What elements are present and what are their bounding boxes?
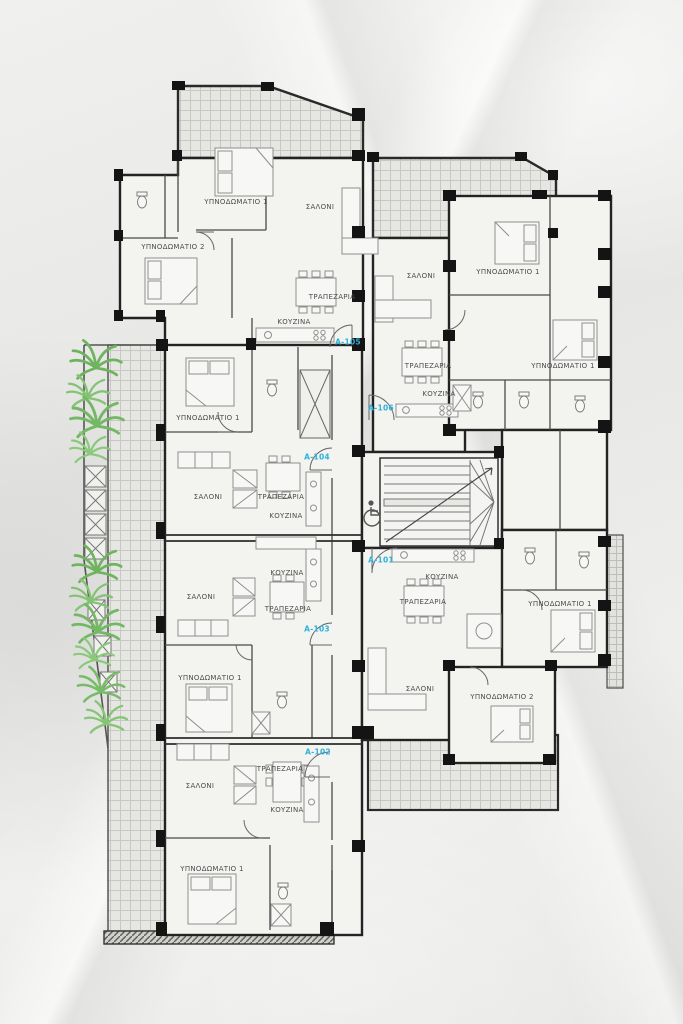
bed bbox=[186, 358, 234, 406]
toilet bbox=[473, 392, 483, 408]
toilet bbox=[277, 692, 287, 708]
staircase bbox=[380, 458, 498, 546]
shower bbox=[271, 904, 291, 926]
kitchen-counter bbox=[304, 766, 319, 822]
bed bbox=[551, 610, 595, 652]
bed bbox=[553, 320, 597, 360]
toilet bbox=[579, 552, 589, 568]
dining-table bbox=[402, 341, 442, 383]
sofa bbox=[177, 744, 229, 760]
dining-table bbox=[404, 579, 444, 623]
dining-table bbox=[270, 575, 304, 619]
dining-table bbox=[296, 271, 336, 313]
floor-plan-drawing bbox=[0, 0, 683, 1024]
toilet bbox=[519, 392, 529, 408]
shower bbox=[252, 712, 270, 734]
kitchen-counter bbox=[392, 549, 474, 562]
kitchen-counter bbox=[306, 472, 321, 526]
toilet bbox=[137, 192, 147, 208]
floor-plan-page: ΥΠΝΟΔΩΜΑΤΙΟ 1ΥΠΝΟΔΩΜΑΤΙΟ 2ΣΑΛΟΝΙΤΡΑΠΕΖΑΡ… bbox=[0, 0, 683, 1024]
toilet bbox=[278, 883, 288, 899]
bed bbox=[215, 148, 273, 196]
toilet bbox=[575, 396, 585, 412]
kitchen-counter bbox=[256, 328, 334, 342]
shower bbox=[453, 385, 471, 411]
toilet bbox=[267, 380, 277, 396]
shaft-box bbox=[300, 370, 330, 438]
bed bbox=[186, 684, 232, 732]
bed bbox=[491, 706, 533, 742]
bed bbox=[495, 222, 539, 264]
sofa bbox=[178, 452, 230, 468]
bed bbox=[188, 874, 236, 924]
utility-closet bbox=[467, 614, 501, 648]
bed bbox=[145, 258, 197, 304]
toilet bbox=[525, 548, 535, 564]
sofa bbox=[178, 620, 228, 636]
kitchen-counter bbox=[396, 404, 458, 417]
